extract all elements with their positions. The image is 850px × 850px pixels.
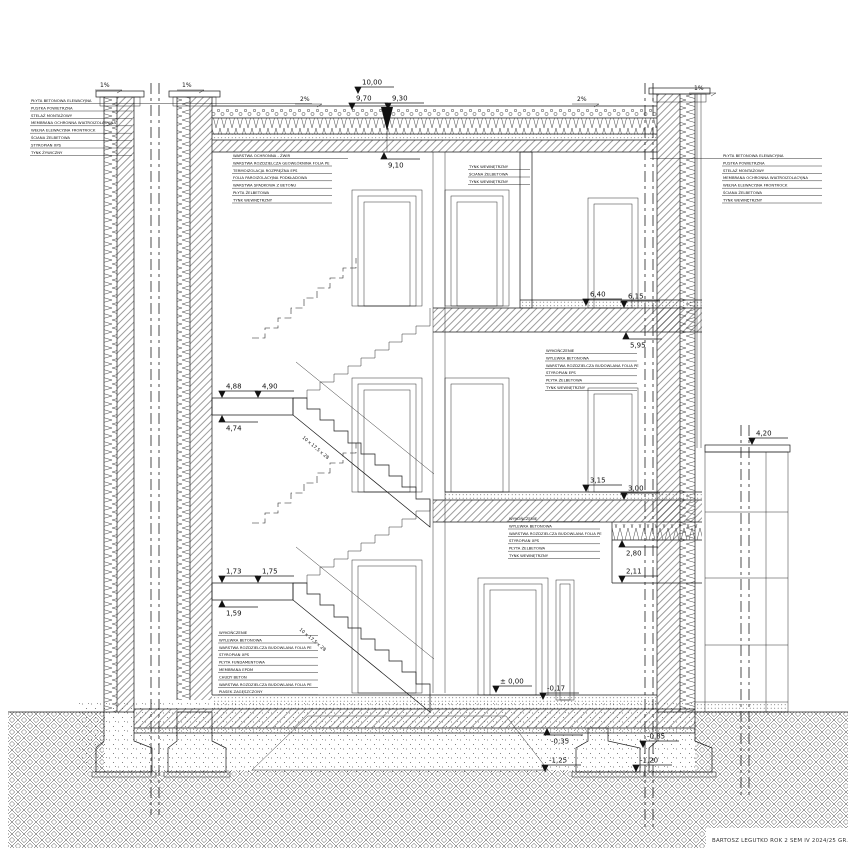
elevation-label: -0,85 [647,733,665,741]
note-row: WYLEWKA BETONOWA [219,637,262,642]
note-row: WARSTWA ROZDZIELCZA BUDOWLANA FOLIA PE [219,645,312,650]
title-block: BARTOSZ LEGUTKO ROK 2 SEM IV 2024/25 GR.… [706,828,850,850]
slope-label: 1% [182,82,192,89]
stair-flight-label: 10 x 17,5 x 28 [301,435,330,461]
note-row: WYKOŃCZENIE [546,348,575,353]
elevation-marker [749,438,789,445]
elevation-label: 3,00 [628,485,644,493]
note-row: WYLEWKA BETONOWA [546,355,589,360]
elevation-label: -0,35 [551,738,569,746]
note-row: FOLIA PAROIZOLACYJNA PODKŁADOWA [233,175,307,180]
elevation-label: 6,40 [590,291,606,299]
note-row: MEMBRANA EPDM [219,667,253,672]
right-exterior-wall [649,88,710,712]
slope-label: 1% [694,85,704,92]
first-floor-slab [433,492,702,522]
elevation-marker [619,576,659,583]
slope-arrow-icon [572,104,599,107]
elevation-label: 2,11 [626,568,642,576]
elevation-label: -1,20 [640,757,658,765]
stair-landing-lower [212,583,293,600]
building-section-drawing: 10,009,709,309,106,406,155,954,884,904,7… [0,0,850,850]
slope-arrow-icon [295,104,322,107]
note-row: STYROPIAN XPS [219,652,250,657]
note-row: TYNK WEWNĘTRZNY [468,164,509,169]
note-row: WEŁNA ELEWACYJNA FRONTROCK [723,183,788,188]
elevation-label: 9,10 [388,162,404,170]
note-row: PUSTKA POWIETRZNA [31,105,73,110]
title-text: BARTOSZ LEGUTKO ROK 2 SEM IV 2024/25 GR.… [712,838,850,844]
left-main-wall [169,91,220,700]
elevation-label: 4,90 [262,383,278,391]
elevation-label: 2,80 [626,550,642,558]
elevation-label: -1,25 [549,757,567,765]
elevation-label: 5,95 [630,342,646,350]
note-row: WARSTWA ROZDZIELCZA GEOWŁÓKNINA FOLIA PE [233,160,330,165]
note-row: TERMOIZOLACJA ROZPRĘŻNA EPS [232,168,298,173]
facade-grid-wall [705,445,790,712]
note-row: PIASEK ZAGĘSZCZONY [219,689,263,694]
elevation-marker [219,576,259,583]
note-row: PŁYTA BETONOWA ELEWACYJNA [31,98,92,103]
stair-flight-cut-lower [293,583,430,712]
elevation-marker [255,391,295,398]
note-row: WYKOŃCZENIE [509,516,538,521]
elevation-label: 10,00 [362,79,382,87]
note-row: PŁYTA BETONOWA ELEWACYJNA [723,153,784,158]
note-list-roof: WARSTWA OCHRONNA - ŻWIRWARSTWA ROZDZIELC… [232,153,348,203]
note-row: STYROPIAN XPS [509,538,540,543]
note-row: TYNK WEWNĘTRZNY [508,553,549,558]
note-list-ground-floor: WYKOŃCZENIEWYLEWKA BETONOWAWARSTWA ROZDZ… [218,630,318,695]
second-storey-wall [520,152,532,308]
note-row: PUSTKA POWIETRZNA [723,160,765,165]
note-list-floor-lower: WYKOŃCZENIEWYLEWKA BETONOWAWARSTWA ROZDZ… [508,516,602,559]
note-row: TYNK ŻYWICZNY [30,150,63,155]
note-list-interior-wall: TYNK WEWNĘTRZNYŚCIANA ŻELBETOWATYNK WEWN… [468,164,530,184]
note-row: STELAŻ MONTAŻOWY [723,168,765,173]
stair-flight-view-upper [252,258,434,474]
second-floor-slab [433,300,702,332]
slope-label: 2% [300,96,310,103]
note-row: PŁYTA ŻELBETOWA [509,546,546,551]
note-row: ŚCIANA ŻELBETOWA [31,135,70,140]
note-row: STYROPIAN EPS [546,370,576,375]
note-row: ŚCIANA ŻELBETOWA [723,190,762,195]
note-row: STELAŻ MONTAŻOWY [31,113,73,118]
note-row: WARSTWA ROZDZIELCZA BUDOWLANA FOLIA PE [509,531,602,536]
elevation-label: 4,74 [226,425,242,433]
elevation-label: 4,20 [756,430,772,438]
elevation-marker [619,540,659,547]
note-row: PŁYTA FUNDAMENTOWA [219,660,265,665]
note-row: TYNK WEWNĘTRZNY [232,197,273,202]
left-party-wall [96,91,144,712]
note-list-floor-upper: WYKOŃCZENIEWYLEWKA BETONOWAWARSTWA ROZDZ… [545,348,639,391]
note-row: PŁYTA ŻELBETOWA [546,378,583,383]
roof-assembly [212,106,657,152]
elevation-label: 3,15 [590,477,606,485]
elevation-marker [583,485,623,492]
note-row: WARSTWA SPADKOWA Z BETONU [233,183,296,188]
note-row: TYNK WEWNĘTRZNY [468,179,509,184]
note-row: CHUDY BETON [219,674,247,679]
annotations-layer: 10,009,709,309,106,406,155,954,884,904,7… [30,79,822,773]
note-row: MEMBRANA OCHRONNA WIATROIZOLACYJNA [723,175,808,180]
elevation-marker [623,332,663,339]
note-row: WARSTWA ROZDZIELCZA BUDOWLANA FOLIA PE [219,682,312,687]
interior-wall [433,152,445,693]
elevation-marker [219,600,259,607]
slope-label: 2% [577,96,587,103]
elevation-marker [355,87,395,94]
note-row: ŚCIANA ŻELBETOWA [469,171,508,176]
elevation-marker [219,415,259,422]
note-row: WARSTWA ROZDZIELCZA BUDOWLANA FOLIA PE [546,363,639,368]
slope-arrow-icon [95,90,122,93]
note-row: STYROPIAN XPS [31,142,62,147]
elevation-label: -0,17 [547,685,565,693]
note-row: PŁYTA ŻELBETOWA [233,190,270,195]
note-row: WYKOŃCZENIE [219,630,248,635]
elevation-label: 1,75 [262,568,278,576]
elevation-label: 4,88 [226,383,242,391]
elevation-label: ± 0,00 [500,678,524,686]
stair-landing-upper [212,398,293,415]
elevation-label: 9,30 [392,95,408,103]
elevation-marker [493,686,533,693]
drawing-sheet: 10,009,709,309,106,406,155,954,884,904,7… [0,0,850,850]
slope-arrow-icon [177,90,204,93]
elevation-marker [219,391,259,398]
elevation-label: 6,15 [628,293,644,301]
windows-first-storey [352,378,638,492]
windows-ground-storey [352,560,574,700]
elevation-marker [381,152,421,159]
note-row: WARSTWA OCHRONNA - ŻWIR [233,153,291,158]
elevation-label: 1,59 [226,610,242,618]
note-row: TYNK WEWNĘTRZNY [722,197,763,202]
note-row: WYLEWKA BETONOWA [509,523,552,528]
stair-flight-cut-upper [293,398,430,527]
stair-flight-view-lower [252,443,434,659]
slope-label: 1% [100,82,110,89]
elevation-marker [255,576,295,583]
note-row: WEŁNA ELEWACYJNA FRONTROCK [31,128,96,133]
note-row: TYNK WEWNĘTRZNY [545,385,586,390]
elevation-label: 9,70 [356,95,372,103]
note-row: MEMBRANA OCHRONNA WIATROIZOLACYJNA [31,120,116,125]
elevation-label: 1,73 [226,568,242,576]
